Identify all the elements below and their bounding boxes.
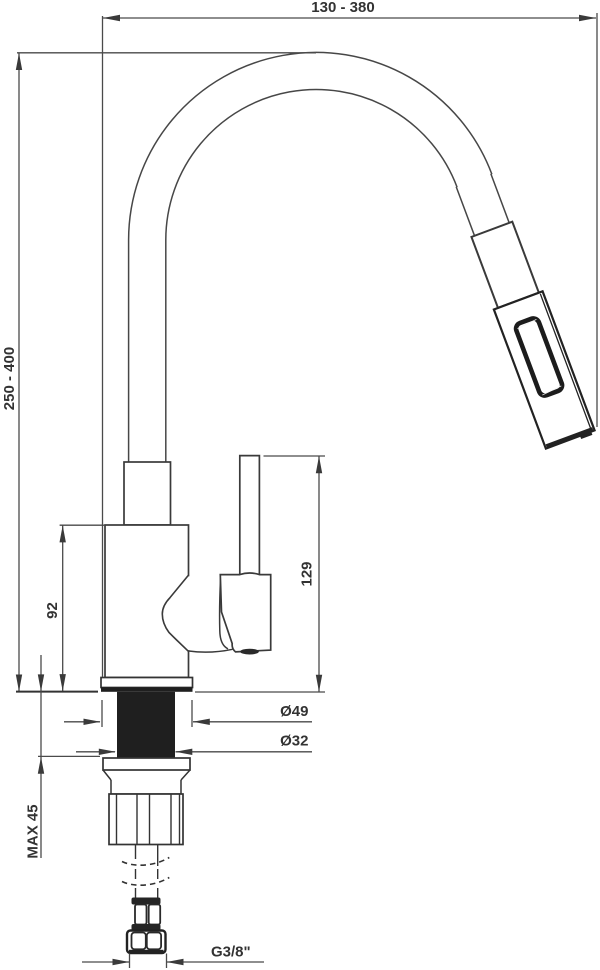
svg-text:Ø49: Ø49 (280, 703, 308, 720)
svg-text:92: 92 (44, 602, 61, 619)
svg-text:250 - 400: 250 - 400 (1, 347, 18, 410)
svg-text:129: 129 (299, 561, 316, 586)
svg-text:Ø32: Ø32 (280, 733, 308, 750)
svg-text:MAX 45: MAX 45 (25, 804, 42, 858)
svg-text:130 - 380: 130 - 380 (311, 0, 374, 16)
svg-text:G3/8": G3/8" (211, 944, 251, 961)
